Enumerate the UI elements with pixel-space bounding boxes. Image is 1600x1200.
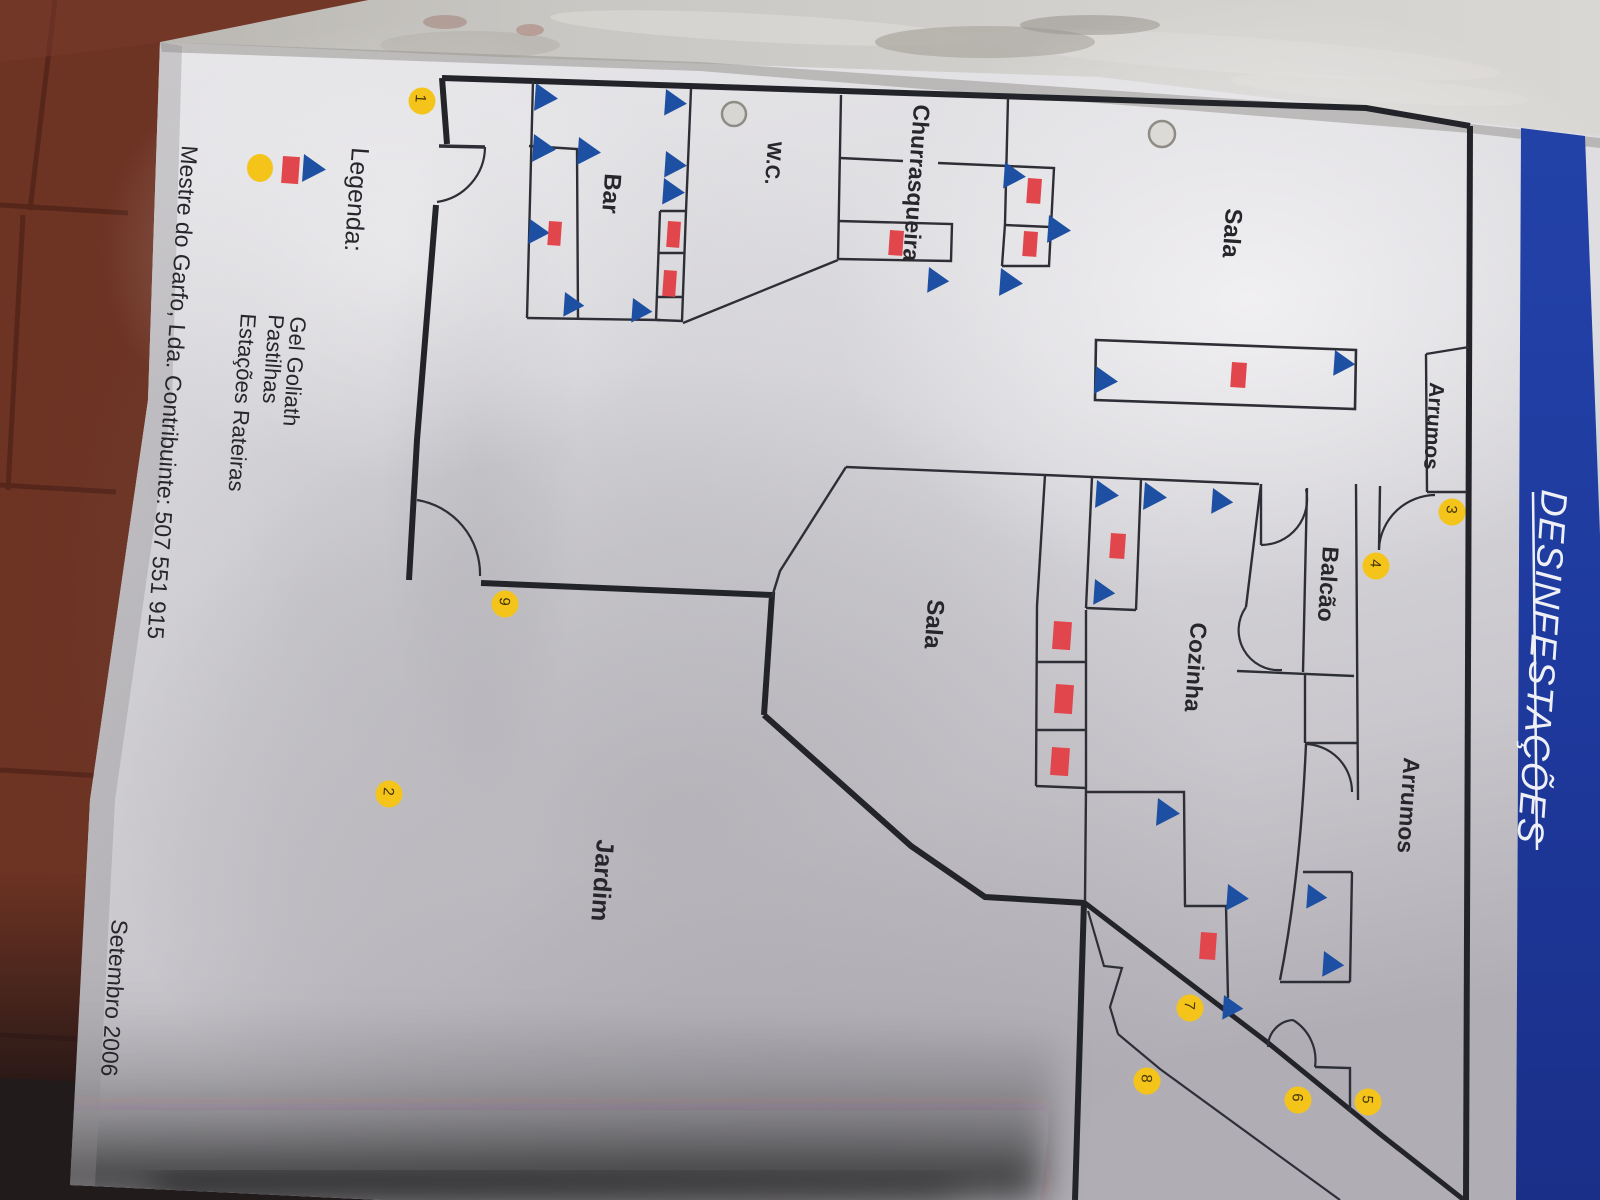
svg-text:Bar: Bar: [596, 173, 626, 215]
svg-text:Sala: Sala: [1217, 208, 1247, 260]
svg-text:W.C.: W.C.: [760, 141, 785, 186]
svg-text:1: 1: [411, 94, 429, 104]
svg-text:4: 4: [1366, 559, 1384, 569]
svg-text:3: 3: [1442, 505, 1460, 515]
svg-text:9: 9: [495, 597, 513, 607]
svg-text:6: 6: [1288, 1093, 1306, 1103]
svg-text:Balcão: Balcão: [1313, 546, 1344, 623]
svg-text:8: 8: [1137, 1074, 1155, 1084]
svg-text:Sala: Sala: [919, 599, 949, 651]
svg-text:Jardim: Jardim: [585, 839, 619, 923]
svg-text:5: 5: [1358, 1095, 1376, 1105]
svg-text:2: 2: [379, 787, 397, 797]
svg-text:7: 7: [1180, 1001, 1198, 1011]
